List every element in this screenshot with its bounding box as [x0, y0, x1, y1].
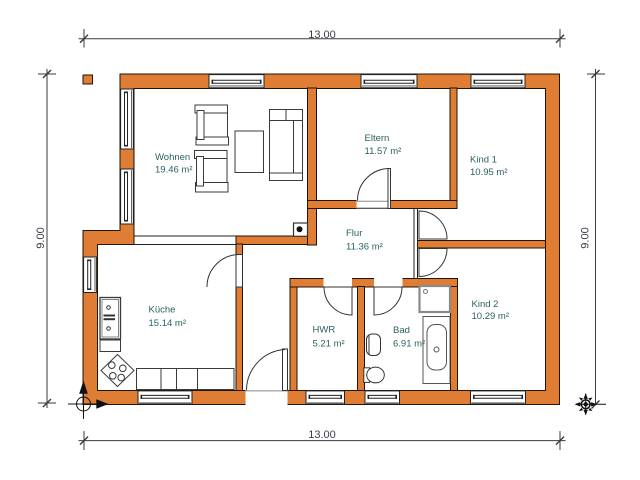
svg-text:15.14 m²: 15.14 m² [149, 318, 187, 329]
svg-text:HWR: HWR [313, 325, 336, 336]
svg-text:13.00: 13.00 [308, 29, 336, 41]
svg-text:19.46 m²: 19.46 m² [155, 165, 193, 176]
svg-text:Flur: Flur [346, 228, 362, 239]
svg-text:11.36 m²: 11.36 m² [346, 242, 383, 253]
svg-text:10.29 m²: 10.29 m² [472, 311, 510, 322]
svg-text:9.00: 9.00 [35, 227, 47, 248]
svg-text:11.57 m²: 11.57 m² [365, 146, 402, 157]
svg-text:9.00: 9.00 [580, 227, 592, 248]
svg-text:13.00: 13.00 [308, 429, 336, 441]
svg-text:Kind 2: Kind 2 [472, 299, 499, 310]
svg-text:6.91 m²: 6.91 m² [393, 339, 425, 350]
svg-text:Wohnen: Wohnen [155, 152, 190, 163]
svg-text:10.95 m²: 10.95 m² [470, 167, 508, 178]
svg-text:Küche: Küche [149, 305, 176, 316]
svg-text:Eltern: Eltern [365, 133, 390, 144]
svg-text:Bad: Bad [393, 325, 410, 336]
svg-text:5.21 m²: 5.21 m² [313, 339, 345, 350]
svg-text:Kind 1: Kind 1 [470, 155, 497, 166]
